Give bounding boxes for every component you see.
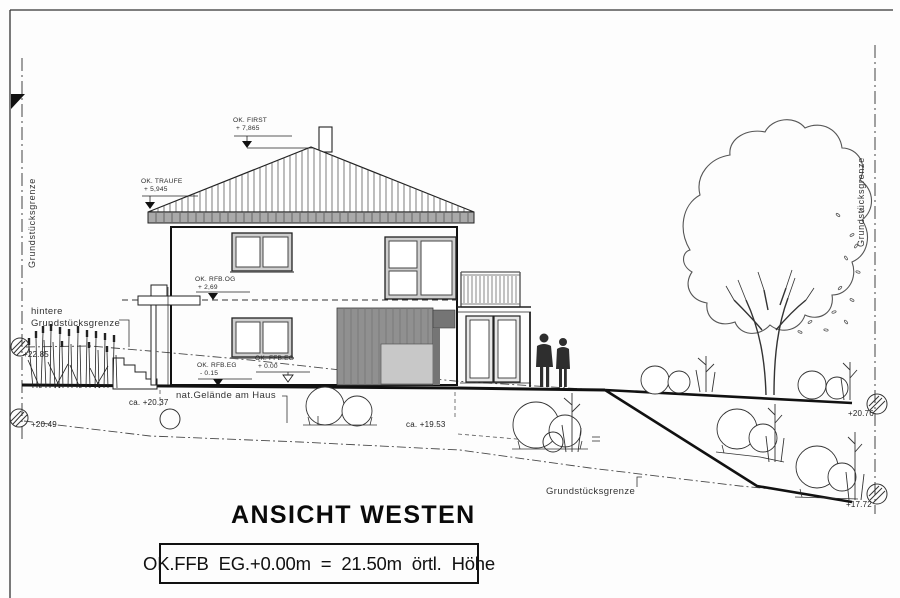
chimney xyxy=(319,127,332,152)
annex xyxy=(457,307,531,387)
hipped-roof xyxy=(148,140,474,212)
spot-elevation-right-upper: +20.76 xyxy=(848,409,874,418)
datum-box: OK.FFB EG.+0.00m = 21.50m örtl. Höhe xyxy=(159,543,479,584)
nat-gelaende-note: nat.Gelände am Haus xyxy=(176,390,276,402)
tree-crown xyxy=(683,120,871,334)
tree-trunk xyxy=(734,288,806,395)
people-figures xyxy=(536,334,570,388)
balcony-railing xyxy=(461,272,520,307)
garage-opening xyxy=(381,344,433,384)
survey-marker-house-left xyxy=(160,409,180,429)
spot-elevation-house-right: ca. +19.53 xyxy=(406,420,446,429)
level-rfb-eg: OK. RFB.EG- 0.15 xyxy=(197,362,237,378)
window-og-left xyxy=(230,233,294,272)
survey-marker-left xyxy=(10,409,28,427)
garden-steps xyxy=(113,358,157,389)
drawing-title: ANSICHT WESTEN xyxy=(231,501,476,530)
spot-elevation-left: +20.49 xyxy=(31,420,57,429)
spot-elevation-house-left: ca. +20.37 xyxy=(129,398,169,407)
level-first: OK. FIRST+ 7,865 xyxy=(233,117,267,133)
window-eg-left xyxy=(230,318,294,358)
facade-panel xyxy=(337,308,455,385)
boundary-label-right: Grundstücksgrenze xyxy=(856,157,866,247)
window-og-balcony-door xyxy=(385,237,456,299)
entrance-porch xyxy=(138,285,200,385)
level-traufe: OK. TRAUFE+ 5,945 xyxy=(141,178,182,194)
elevation-drawing-sheet: Grundstücksgrenze Grundstücksgrenze hint… xyxy=(0,0,900,598)
tree xyxy=(683,120,871,395)
spot-elevation-right-lower: +17.72 xyxy=(846,500,872,509)
boundary-note-south: Grundstücksgrenze xyxy=(546,486,635,498)
level-rfb-og: OK. RFB.OG+ 2,69 xyxy=(195,276,235,292)
level-ffb-eg: OK. FFB.EG+ 0.00 xyxy=(255,355,294,371)
eave-fascia xyxy=(148,212,474,223)
boundary-label-left: Grundstücksgrenze xyxy=(27,178,37,268)
spot-elevation-rear: +22.85 xyxy=(23,350,49,359)
rear-boundary-note: hintere Grundstücksgrenze xyxy=(31,306,120,330)
frame-corner-mark xyxy=(11,94,25,109)
